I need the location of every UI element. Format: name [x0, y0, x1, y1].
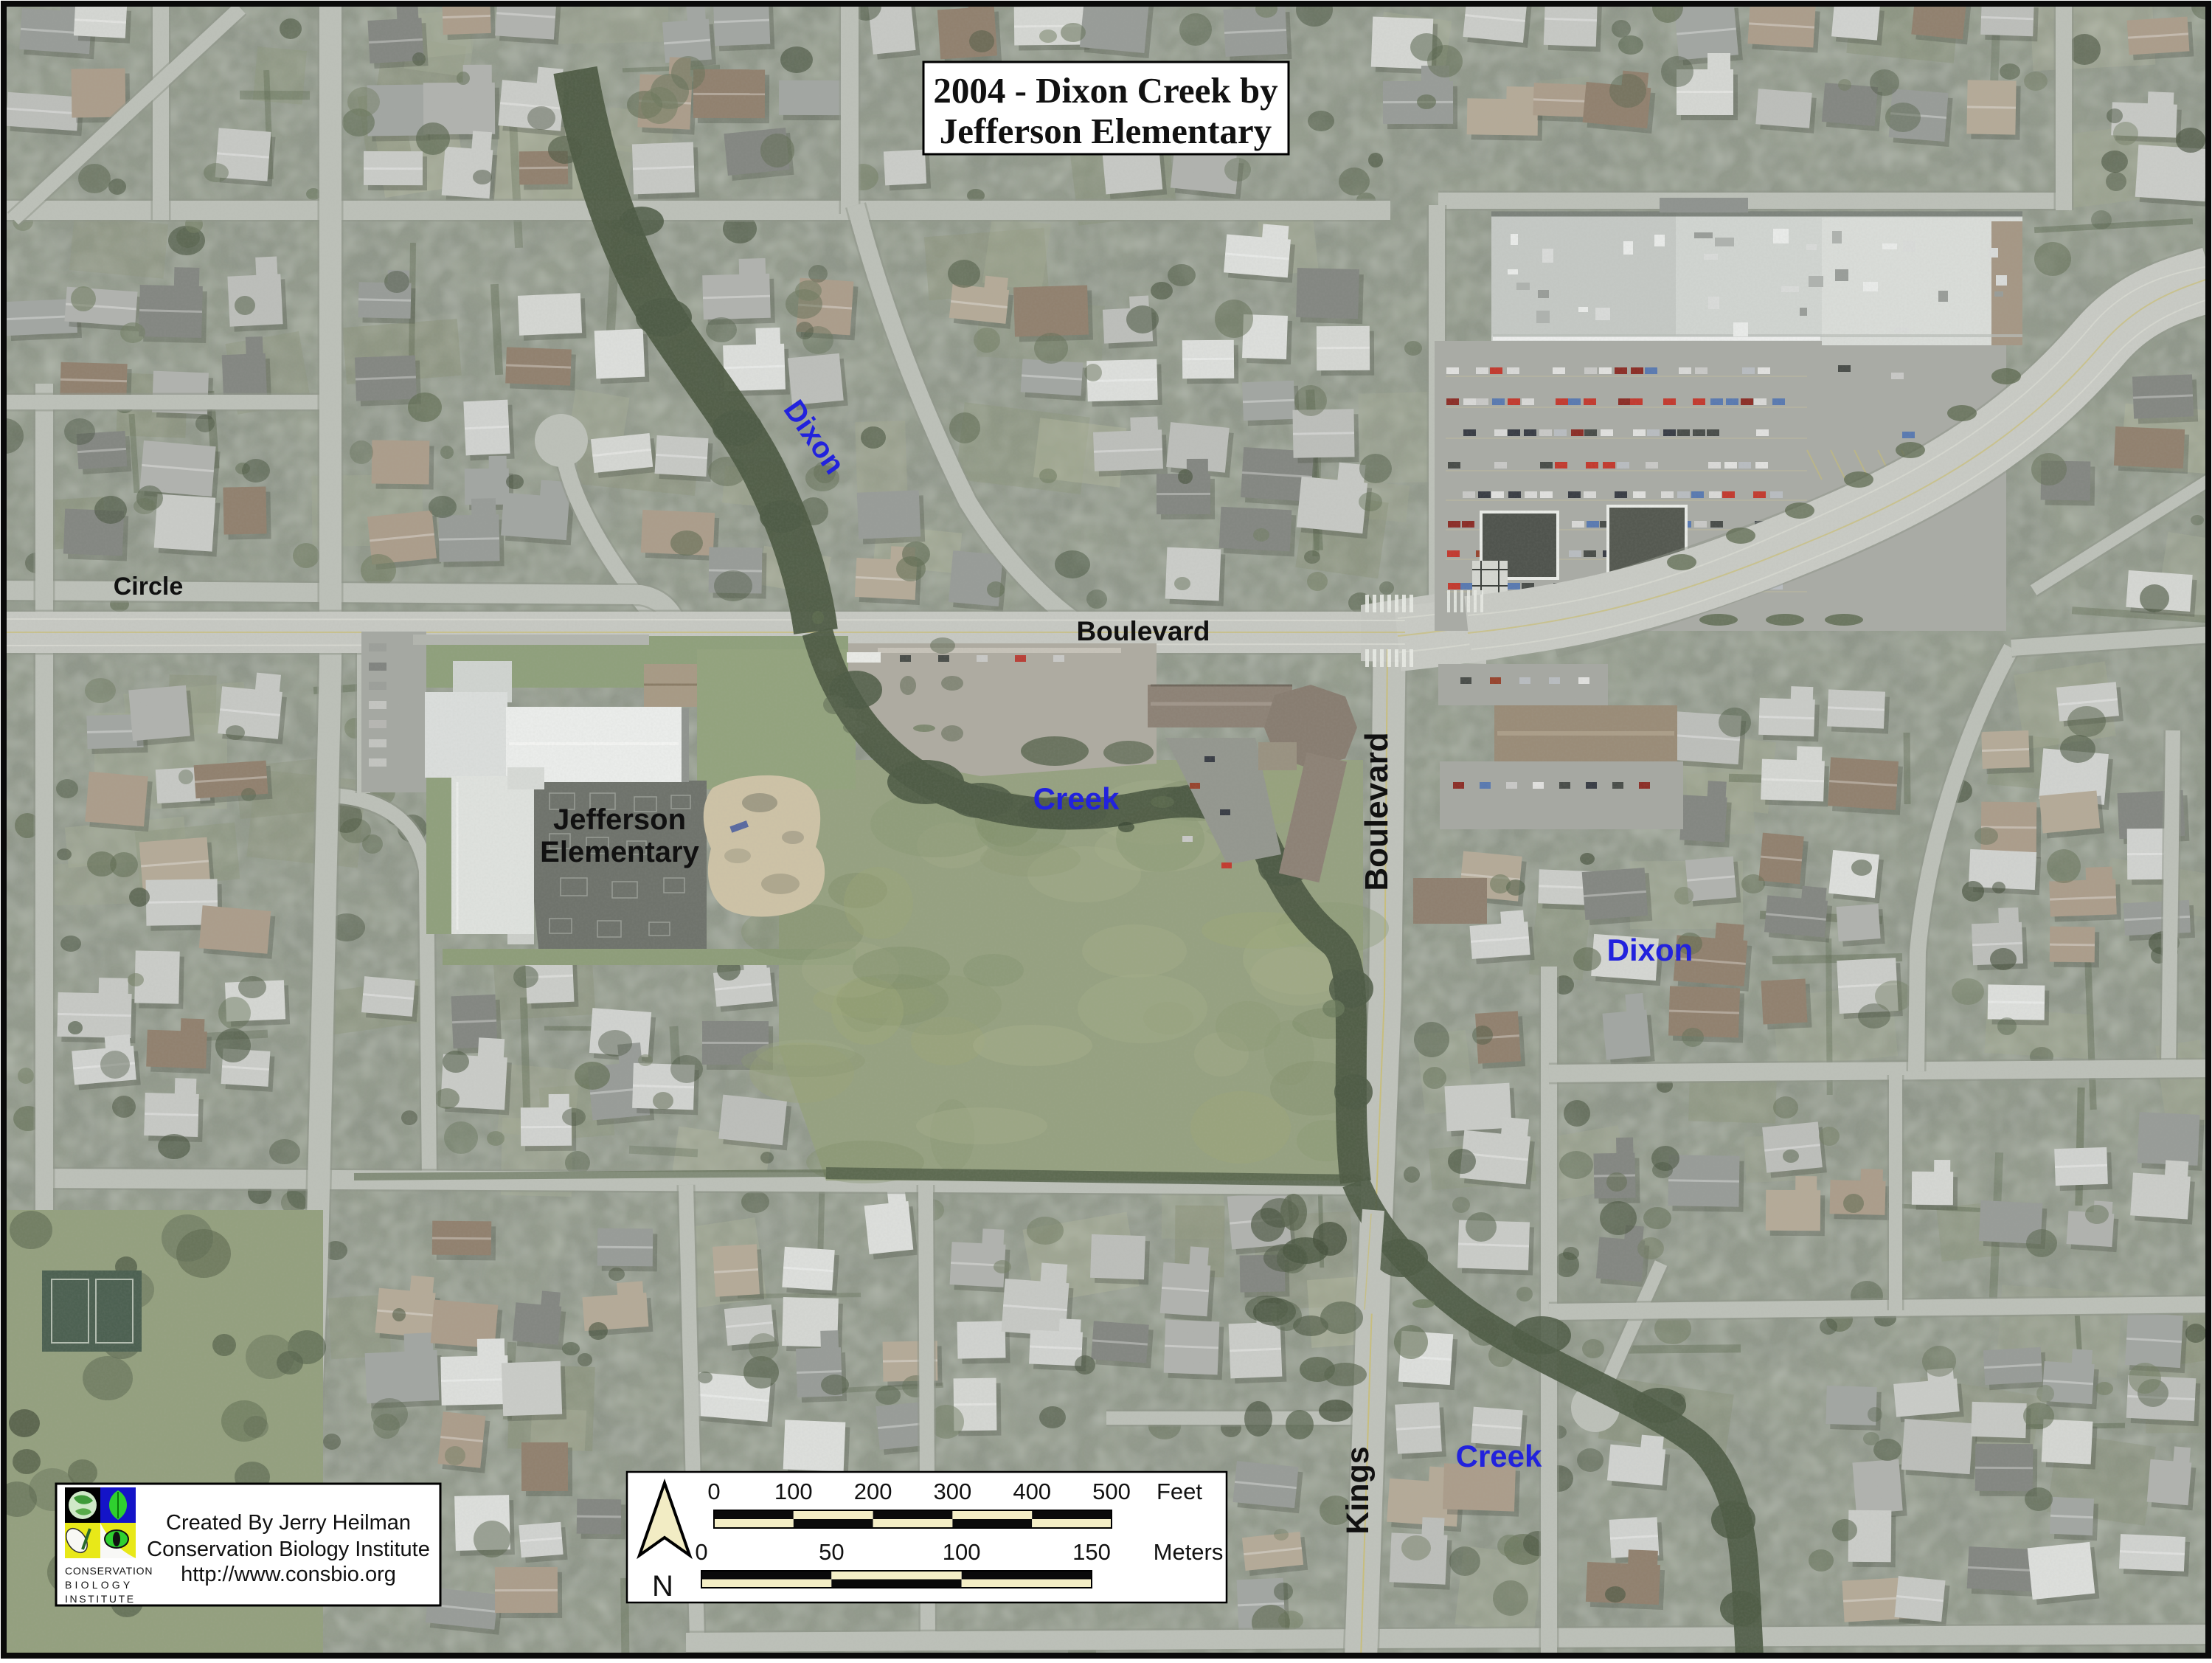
svg-text:Circle: Circle: [114, 573, 184, 601]
svg-text:Boulevard: Boulevard: [1077, 616, 1210, 646]
svg-text:Feet: Feet: [1157, 1479, 1202, 1504]
svg-text:400: 400: [1013, 1479, 1051, 1504]
svg-text:Created By Jerry Heilman: Created By Jerry Heilman: [166, 1511, 411, 1535]
svg-text:100: 100: [774, 1479, 813, 1504]
svg-text:2004 - Dixon Creek by: 2004 - Dixon Creek by: [933, 70, 1278, 111]
svg-text:INSTITUTE: INSTITUTE: [65, 1593, 136, 1605]
svg-text:50: 50: [819, 1539, 844, 1565]
svg-text:Meters: Meters: [1154, 1539, 1224, 1565]
svg-text:0: 0: [695, 1539, 707, 1565]
svg-text:Jefferson: Jefferson: [553, 803, 686, 836]
svg-text:Creek: Creek: [1033, 781, 1120, 816]
svg-text:Kings: Kings: [1340, 1446, 1376, 1534]
svg-text:150: 150: [1072, 1539, 1111, 1565]
svg-text:200: 200: [854, 1479, 892, 1504]
svg-text:BIOLOGY: BIOLOGY: [65, 1579, 133, 1591]
svg-text:300: 300: [934, 1479, 972, 1504]
svg-text:Creek: Creek: [1456, 1439, 1542, 1473]
svg-text:100: 100: [943, 1539, 981, 1565]
svg-text:http://www.consbio.org: http://www.consbio.org: [181, 1563, 396, 1586]
svg-text:500: 500: [1092, 1479, 1131, 1504]
svg-text:CONSERVATION: CONSERVATION: [65, 1565, 153, 1577]
svg-text:Jefferson Elementary: Jefferson Elementary: [940, 111, 1272, 151]
svg-text:Elementary: Elementary: [540, 836, 699, 868]
svg-text:0: 0: [707, 1479, 720, 1504]
svg-text:Boulevard: Boulevard: [1359, 732, 1395, 891]
svg-text:Conservation Biology Institute: Conservation Biology Institute: [147, 1538, 430, 1561]
svg-text:Dixon: Dixon: [1607, 933, 1693, 967]
svg-text:N: N: [652, 1570, 673, 1603]
